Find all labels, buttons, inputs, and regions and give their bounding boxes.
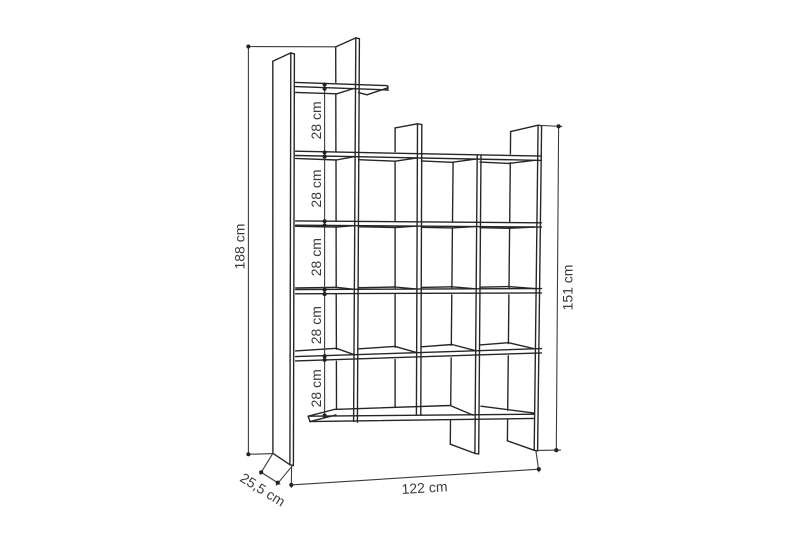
- svg-text:28 cm: 28 cm: [308, 369, 324, 407]
- svg-text:28 cm: 28 cm: [308, 169, 324, 207]
- svg-text:122 cm: 122 cm: [401, 478, 448, 497]
- svg-text:28 cm: 28 cm: [308, 101, 324, 139]
- svg-text:28 cm: 28 cm: [308, 238, 324, 276]
- svg-text:151 cm: 151 cm: [559, 265, 575, 311]
- svg-text:188 cm: 188 cm: [231, 224, 247, 270]
- svg-text:28 cm: 28 cm: [308, 306, 324, 344]
